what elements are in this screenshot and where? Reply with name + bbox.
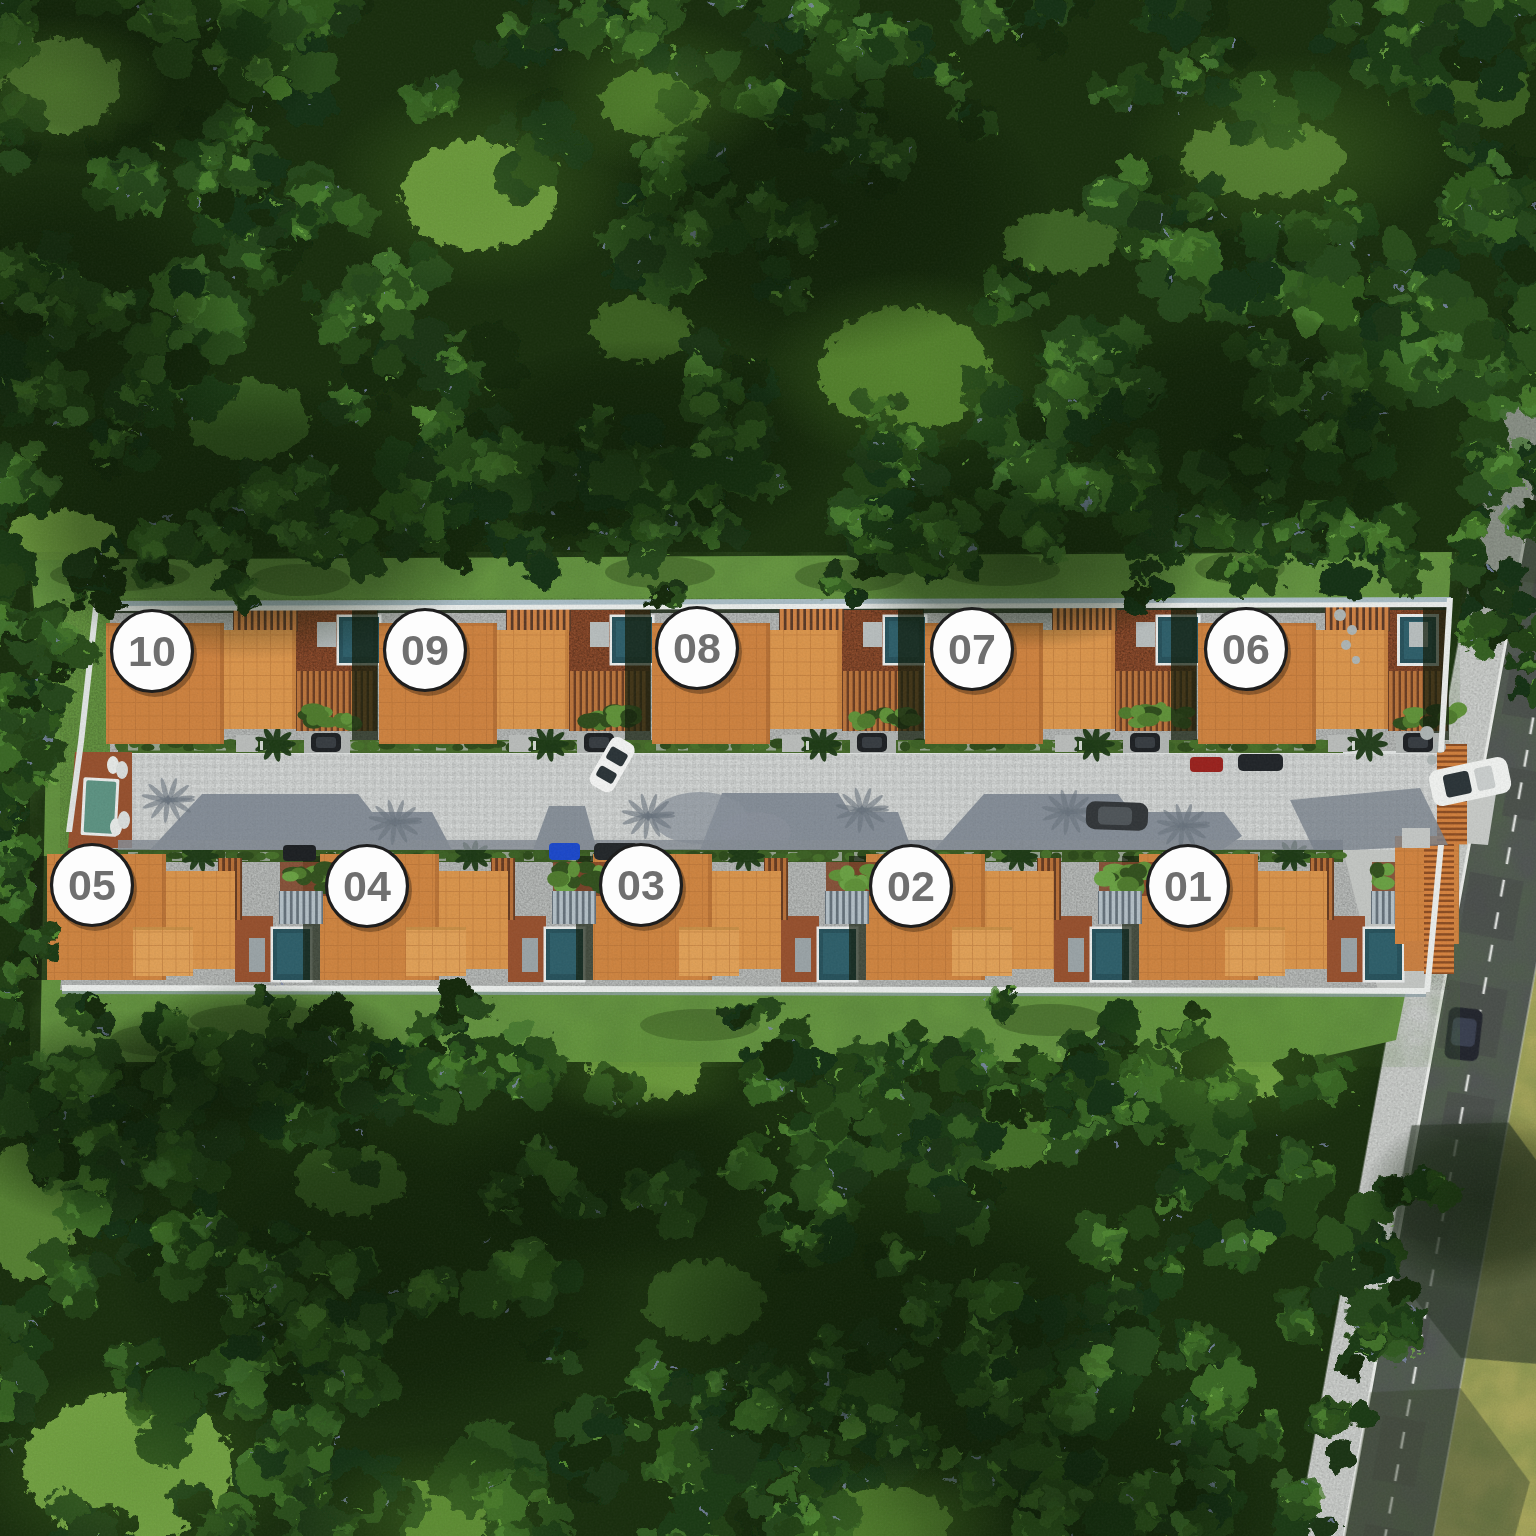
svg-text:08: 08 [673,624,721,672]
svg-text:07: 07 [948,625,996,673]
svg-text:09: 09 [401,626,449,674]
svg-text:04: 04 [343,862,391,910]
svg-text:03: 03 [617,861,665,909]
svg-text:02: 02 [887,862,935,910]
svg-text:06: 06 [1222,625,1270,673]
svg-text:05: 05 [68,861,116,909]
svg-text:10: 10 [128,627,176,675]
svg-text:01: 01 [1164,862,1212,910]
